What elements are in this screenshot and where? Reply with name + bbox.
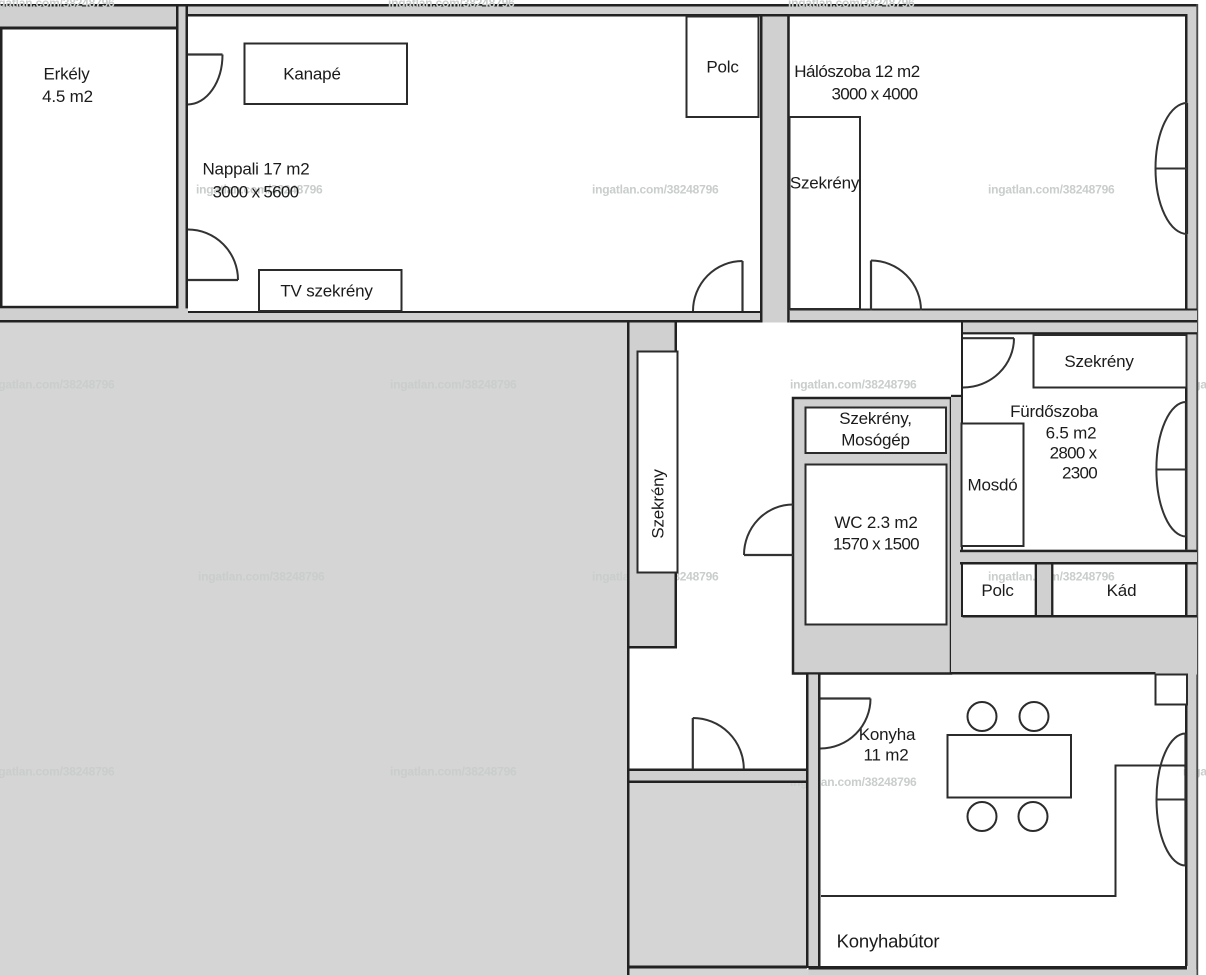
svg-text:ingatlan.com/38248796: ingatlan.com/38248796 — [390, 765, 517, 779]
svg-text:3000 x 5600: 3000 x 5600 — [213, 183, 299, 202]
svg-text:Erkély: Erkély — [43, 65, 90, 84]
svg-text:Kanapé: Kanapé — [283, 65, 340, 84]
svg-text:Fürdőszoba: Fürdőszoba — [1010, 402, 1099, 421]
svg-text:Konyhabútor: Konyhabútor — [837, 931, 940, 952]
svg-text:ingatlan.com/38248796: ingatlan.com/38248796 — [788, 0, 915, 10]
svg-text:Polc: Polc — [981, 581, 1014, 600]
svg-text:ingatlan.com/38248796: ingatlan.com/38248796 — [198, 570, 325, 584]
svg-text:ingatlan.com/38248796: ingatlan.com/38248796 — [0, 0, 115, 10]
svg-text:Szekrény: Szekrény — [649, 469, 668, 539]
svg-text:ingatlan.com/38248796: ingatlan.com/38248796 — [592, 183, 719, 197]
svg-text:Nappali 17 m2: Nappali 17 m2 — [202, 160, 309, 179]
svg-text:ingatlan.com/38248796: ingatlan.com/38248796 — [0, 765, 115, 779]
svg-text:ingatlan.com/38248796: ingatlan.com/38248796 — [0, 378, 115, 392]
svg-text:ingatlan.com/38248796: ingatlan.com/38248796 — [388, 0, 515, 10]
svg-text:Polc: Polc — [706, 58, 739, 77]
svg-text:4.5 m2: 4.5 m2 — [42, 87, 93, 106]
svg-text:ingatlan.com/38248796: ingatlan.com/38248796 — [390, 378, 517, 392]
svg-text:1570 x 1500: 1570 x 1500 — [833, 535, 919, 554]
svg-text:Hálószoba 12 m2: Hálószoba 12 m2 — [794, 62, 920, 81]
svg-text:Konyha: Konyha — [859, 725, 916, 744]
svg-text:Kád: Kád — [1107, 581, 1137, 600]
svg-text:2300: 2300 — [1062, 464, 1097, 483]
svg-text:6.5 m2: 6.5 m2 — [1046, 424, 1097, 443]
svg-text:Szekrény,: Szekrény, — [839, 409, 912, 428]
svg-text:Szekrény: Szekrény — [790, 174, 860, 193]
svg-text:2800 x: 2800 x — [1050, 444, 1098, 463]
svg-text:11 m2: 11 m2 — [864, 746, 909, 765]
svg-text:TV szekrény: TV szekrény — [280, 282, 373, 301]
svg-text:ingatlan.com/38248796: ingatlan.com/38248796 — [790, 378, 917, 392]
svg-text:Mosógép: Mosógép — [841, 431, 910, 450]
svg-text:Szekrény: Szekrény — [1064, 352, 1134, 371]
svg-text:3000 x 4000: 3000 x 4000 — [832, 85, 918, 104]
svg-text:ingatlan.com/38248796: ingatlan.com/38248796 — [988, 183, 1115, 197]
svg-text:Mosdó: Mosdó — [967, 476, 1017, 495]
svg-text:WC 2.3 m2: WC 2.3 m2 — [834, 513, 917, 532]
